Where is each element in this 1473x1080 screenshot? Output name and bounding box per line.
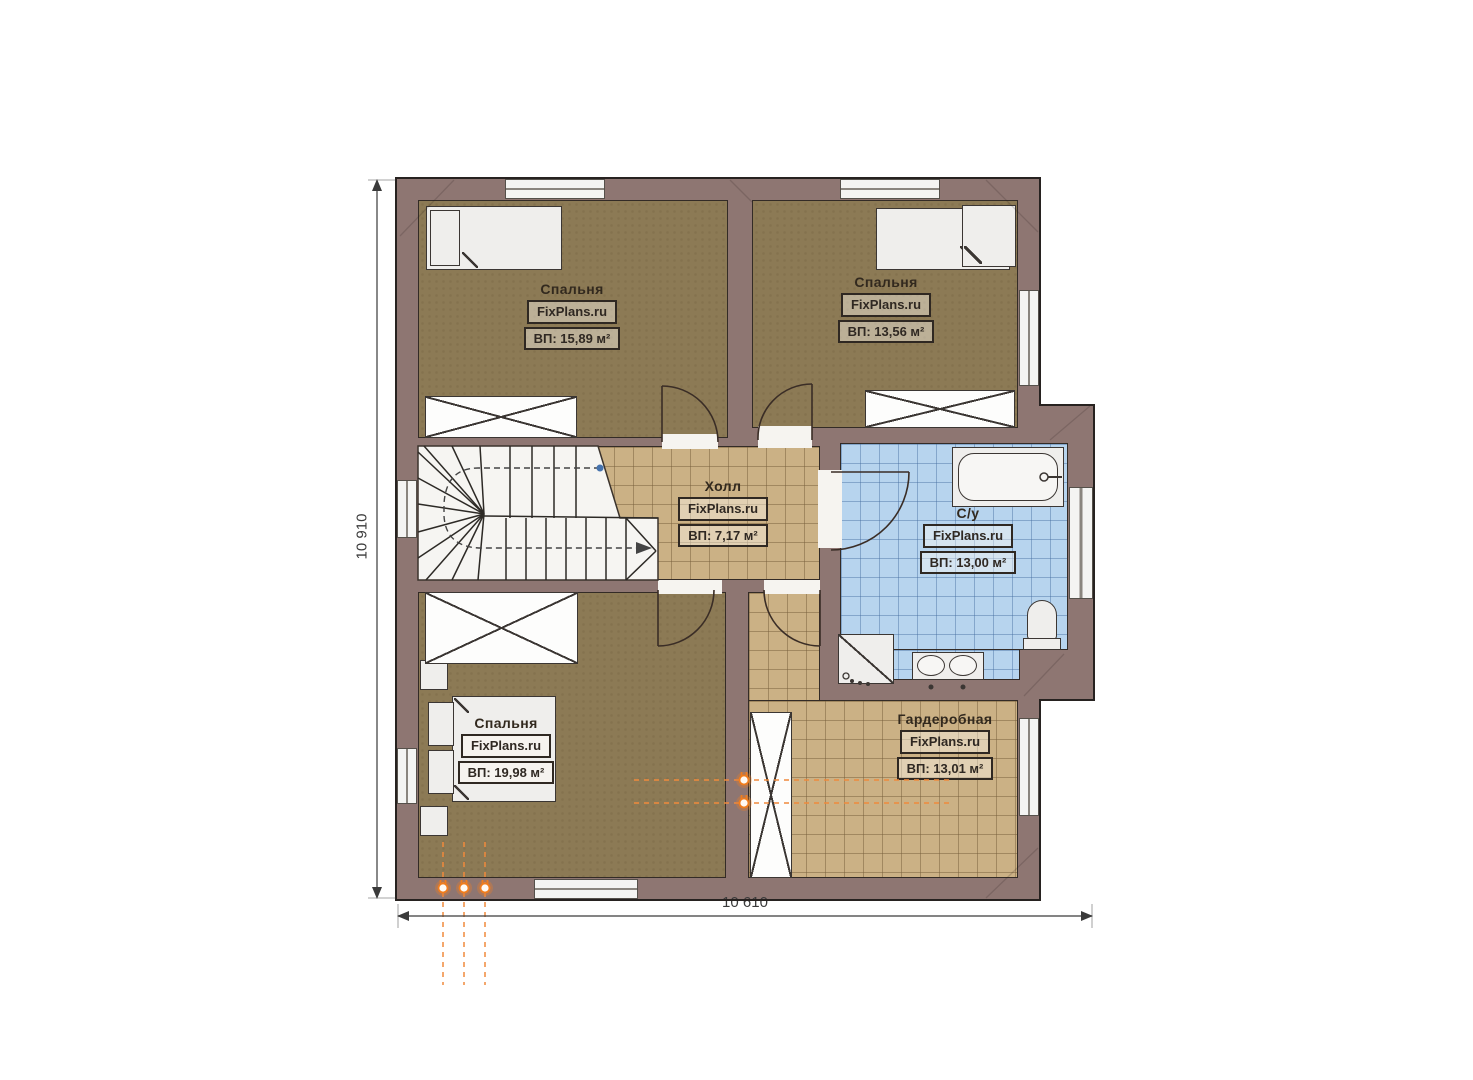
door-opening <box>758 426 812 448</box>
sink-basin <box>917 655 945 676</box>
room-name: Холл <box>705 478 742 494</box>
wardrobe-cabinet <box>750 712 792 878</box>
window <box>1019 290 1039 386</box>
area-box: ВП: 13,01 м² <box>897 757 994 781</box>
toilet-tank <box>1023 638 1061 650</box>
area-box: ВП: 15,89 м² <box>524 327 621 351</box>
toilet-bowl <box>1027 600 1057 640</box>
nightstand <box>420 806 448 836</box>
room-name: Спальня <box>540 281 603 297</box>
brand-box: FixPlans.ru <box>678 497 768 521</box>
area-box: ВП: 19,98 м² <box>458 761 555 785</box>
window <box>505 179 605 199</box>
floor-plan-page: Спальня FixPlans.ru ВП: 15,89 м² Спальня… <box>0 0 1473 1080</box>
label-hall: Холл FixPlans.ru ВП: 7,17 м² <box>640 478 806 547</box>
door-opening <box>658 580 722 594</box>
brand-box: FixPlans.ru <box>461 734 551 758</box>
room-name: Гардеробная <box>898 711 993 727</box>
door-opening <box>764 580 820 594</box>
blanket-fold <box>454 698 469 713</box>
dimension-height-label: 10 910 <box>354 493 371 581</box>
brand-box: FixPlans.ru <box>841 293 931 317</box>
dimension-vertical <box>368 179 396 899</box>
room-name: Спальня <box>474 715 537 731</box>
blanket-fold <box>462 252 478 268</box>
label-bedroom-top-left: Спальня FixPlans.ru ВП: 15,89 м² <box>472 281 672 350</box>
area-box: ВП: 13,00 м² <box>920 551 1017 575</box>
brand-box: FixPlans.ru <box>900 730 990 754</box>
brand-box: FixPlans.ru <box>527 300 617 324</box>
window <box>840 179 940 199</box>
brand-box: FixPlans.ru <box>923 524 1013 548</box>
dimension-width-label: 10 610 <box>705 894 785 911</box>
window <box>397 480 417 538</box>
wardrobe-cabinet <box>865 390 1015 428</box>
corridor <box>748 592 820 702</box>
shower-tray <box>838 634 894 684</box>
wardrobe-cabinet <box>425 396 577 438</box>
area-box: ВП: 13,56 м² <box>838 320 935 344</box>
sink-basin <box>949 655 977 676</box>
room-name: Спальня <box>854 274 917 290</box>
door-opening <box>662 434 718 449</box>
blanket-fold <box>454 785 469 800</box>
label-wardrobe: Гардеробная FixPlans.ru ВП: 13,01 м² <box>850 711 1040 780</box>
wardrobe-cabinet <box>425 592 578 664</box>
bathtub <box>952 447 1064 507</box>
window <box>534 879 638 899</box>
label-bedroom-bottom: Спальня FixPlans.ru ВП: 19,98 м² <box>422 715 590 784</box>
label-bedroom-top-right: Спальня FixPlans.ru ВП: 13,56 м² <box>786 274 986 343</box>
window <box>397 748 417 804</box>
closet-door-fold <box>964 246 982 264</box>
window <box>1069 487 1093 599</box>
bed-pillow <box>430 210 460 266</box>
nightstand <box>420 660 448 690</box>
room-name: С/у <box>957 505 980 521</box>
bathtub-basin <box>958 453 1058 501</box>
area-box: ВП: 7,17 м² <box>678 524 768 548</box>
door-opening <box>818 470 842 548</box>
label-bathroom: С/у FixPlans.ru ВП: 13,00 м² <box>884 505 1052 574</box>
